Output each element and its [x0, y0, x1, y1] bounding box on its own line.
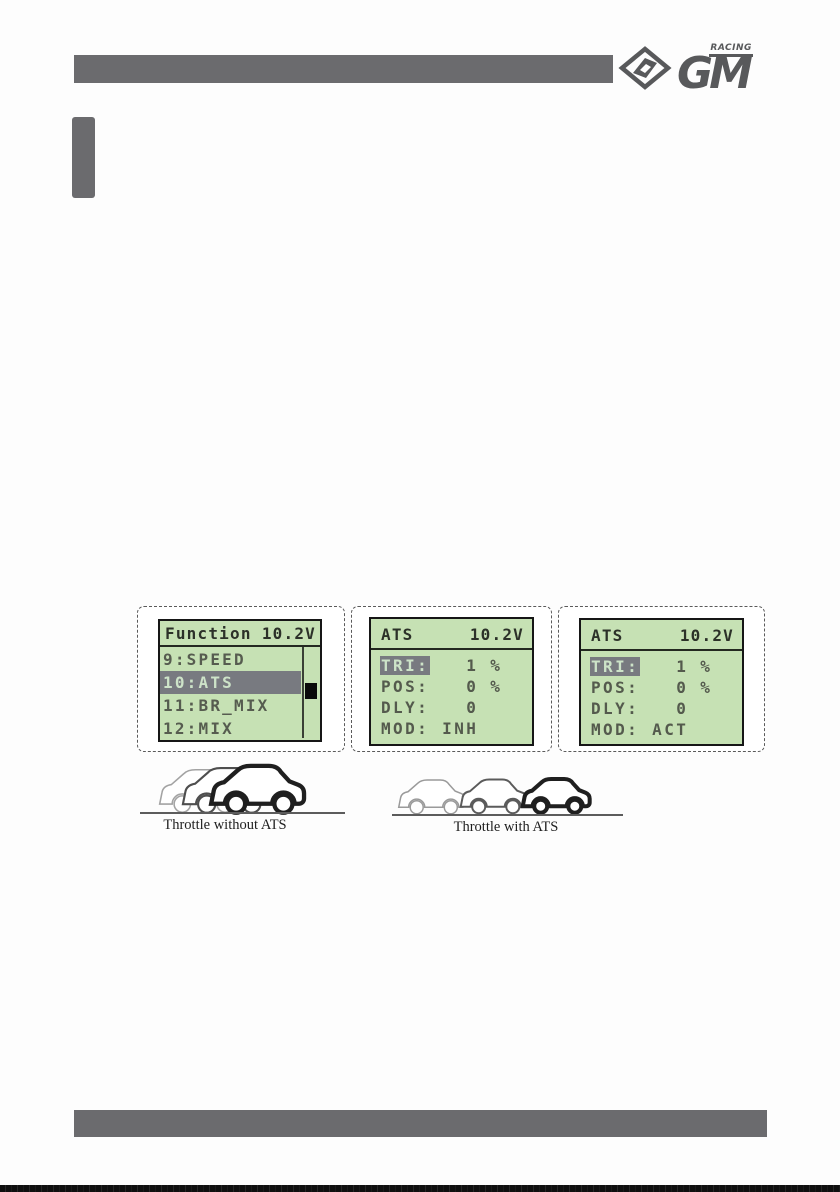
lcd-title-text: ATS [381, 627, 414, 643]
param-value-pos: 0 % [430, 677, 502, 696]
param-value-mod: INH [430, 719, 478, 738]
param-label-dly: DLY: [590, 699, 640, 718]
param-label-dly: DLY: [380, 698, 430, 717]
param-value-tri: 1 % [640, 657, 712, 676]
param-row-pos: POS: 0 % [590, 677, 742, 698]
manual-page: RACING GM Function 10.2V 9:SPEED 10:ATS … [0, 0, 840, 1192]
chapter-side-tab [72, 117, 95, 198]
menu-item-ats-selected: 10:ATS [160, 671, 301, 694]
param-row-mod: MOD: ACT [590, 719, 742, 740]
lcd-title: ATS 10.2V [371, 619, 532, 650]
car-ghost-2 [461, 779, 528, 813]
caption-without-ats: Throttle without ATS [125, 817, 325, 834]
screen-box-ats-act: ATS 10.2V TRI: 1 % POS: 0 % DLY: 0 MOD: … [558, 606, 765, 752]
param-value-dly: 0 [640, 699, 688, 718]
param-row-tri: TRI: 1 % [590, 656, 742, 677]
gm-racing-logo: RACING GM [620, 42, 785, 94]
param-label-tri-selected: TRI: [590, 657, 640, 676]
screen-box-ats-inh: ATS 10.2V TRI: 1 % POS: 0 % DLY: 0 MOD: … [351, 606, 552, 752]
param-row-tri: TRI: 1 % [380, 655, 532, 676]
lcd-title-text: Function [165, 626, 252, 642]
param-value-dly: 0 [430, 698, 478, 717]
lcd-ats-inh: ATS 10.2V TRI: 1 % POS: 0 % DLY: 0 MOD: … [369, 617, 534, 746]
ats-parameter-list: TRI: 1 % POS: 0 % DLY: 0 MOD: INH [371, 650, 532, 739]
logo-gm-text: GM [677, 55, 753, 93]
lcd-title: ATS 10.2V [581, 620, 742, 651]
car-figure-without-ats [153, 758, 318, 814]
ground-line-left [140, 812, 345, 814]
param-label-mod: MOD: [380, 719, 430, 738]
lcd-title-text: ATS [591, 628, 624, 644]
lcd-title: Function 10.2V [160, 621, 320, 647]
param-row-mod: MOD: INH [380, 718, 532, 739]
footer-bar [74, 1110, 767, 1137]
lcd-function-menu: Function 10.2V 9:SPEED 10:ATS 11:BR_MIX … [158, 619, 322, 742]
screen-box-function-menu: Function 10.2V 9:SPEED 10:ATS 11:BR_MIX … [137, 606, 345, 752]
lcd-voltage: 10.2V [680, 628, 734, 644]
lcd-voltage: 10.2V [470, 627, 524, 643]
gm-diamond-icon [620, 47, 670, 89]
ground-line-right [392, 814, 623, 816]
lcd-ats-act: ATS 10.2V TRI: 1 % POS: 0 % DLY: 0 MOD: … [579, 618, 744, 746]
ats-parameter-list: TRI: 1 % POS: 0 % DLY: 0 MOD: ACT [581, 651, 742, 740]
param-value-mod: ACT [640, 720, 688, 739]
menu-item-speed: 9:SPEED [160, 648, 301, 671]
param-row-dly: DLY: 0 [590, 698, 742, 719]
param-label-tri-selected: TRI: [380, 656, 430, 675]
menu-item-br-mix: 11:BR_MIX [160, 694, 301, 717]
car-ghost-1 [399, 780, 466, 814]
param-value-tri: 1 % [430, 656, 502, 675]
logo-text: RACING GM [677, 43, 753, 93]
param-row-pos: POS: 0 % [380, 676, 532, 697]
param-label-pos: POS: [590, 678, 640, 697]
car-bold [523, 779, 590, 813]
header-title-bar [74, 55, 613, 83]
param-row-dly: DLY: 0 [380, 697, 532, 718]
param-label-pos: POS: [380, 677, 430, 696]
car-figure-with-ats [392, 773, 604, 815]
page-scan-edge [0, 1185, 840, 1192]
caption-with-ats: Throttle with ATS [406, 819, 606, 836]
lcd-scrollbar-thumb [305, 683, 317, 699]
lcd-scrollbar-track [302, 647, 304, 738]
function-menu-list: 9:SPEED 10:ATS 11:BR_MIX 12:MIX [160, 647, 301, 740]
menu-item-mix: 12:MIX [160, 717, 301, 740]
param-label-mod: MOD: [590, 720, 640, 739]
param-value-pos: 0 % [640, 678, 712, 697]
lcd-voltage: 10.2V [262, 626, 316, 642]
